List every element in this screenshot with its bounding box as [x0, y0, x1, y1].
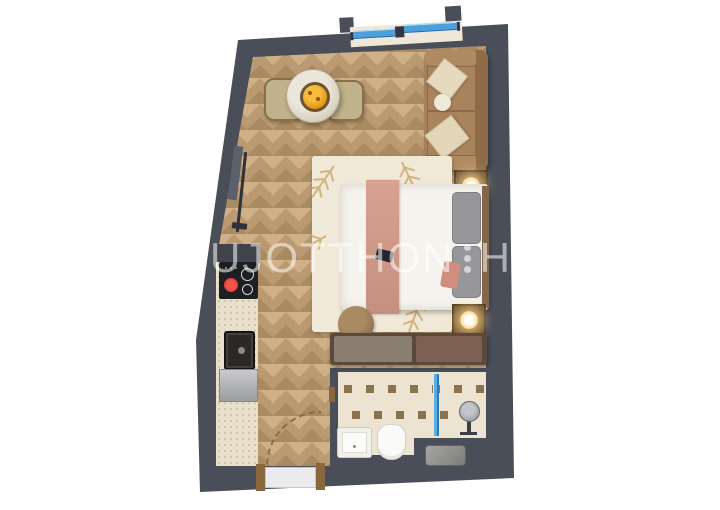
fruit-dot — [316, 97, 320, 101]
cooktop — [219, 262, 258, 299]
fruit-bowl — [300, 82, 330, 112]
sofa-round-pillow — [434, 94, 451, 111]
shower-glass-screen — [433, 374, 439, 436]
fruit-dot — [308, 91, 312, 95]
burner-active-red — [224, 278, 238, 292]
washing-machine — [219, 369, 258, 402]
sofa-backrest — [475, 50, 488, 170]
bathroom-sink — [337, 427, 372, 458]
sofa — [424, 50, 488, 170]
bed-runner — [366, 180, 399, 314]
top-window — [337, 2, 471, 52]
bed-pillow — [452, 192, 481, 244]
window-end-cap-right — [457, 22, 461, 31]
shower-stand-base — [460, 432, 477, 435]
entry-door-frame-left — [256, 464, 265, 491]
bench-cushion-right — [416, 336, 482, 362]
nightstand-lamp-lower — [452, 304, 486, 336]
window-mullion — [395, 26, 405, 38]
bathroom-door-jamb — [329, 387, 335, 402]
shower-head — [459, 401, 480, 422]
bench-cushion-left — [334, 336, 412, 362]
bath-mat — [425, 445, 466, 466]
window-end-cap-left — [350, 32, 353, 40]
faucet-dot — [238, 347, 245, 354]
bed-headboard — [482, 186, 489, 308]
tile-accent-row-2 — [352, 411, 360, 419]
dining-table — [286, 69, 340, 123]
double-bed — [340, 180, 490, 314]
tile-accent-row-1 — [344, 385, 352, 393]
toilet — [377, 424, 406, 460]
bed-foot-bench — [330, 333, 487, 365]
cooktop-knobs — [225, 267, 227, 269]
sink-drain — [353, 445, 356, 448]
kitchen-sink — [224, 331, 255, 370]
kitchen-counter-end-panel — [214, 244, 260, 263]
floor-plan-canvas: UJOTTHON HU — [0, 0, 720, 510]
burner-ring — [242, 284, 253, 295]
burner-ring — [241, 268, 254, 281]
lamp-glow — [460, 311, 478, 329]
entry-door-frame-right — [316, 463, 325, 490]
entry-door-leaf — [265, 467, 316, 488]
window-wall-stub-right — [445, 6, 462, 22]
